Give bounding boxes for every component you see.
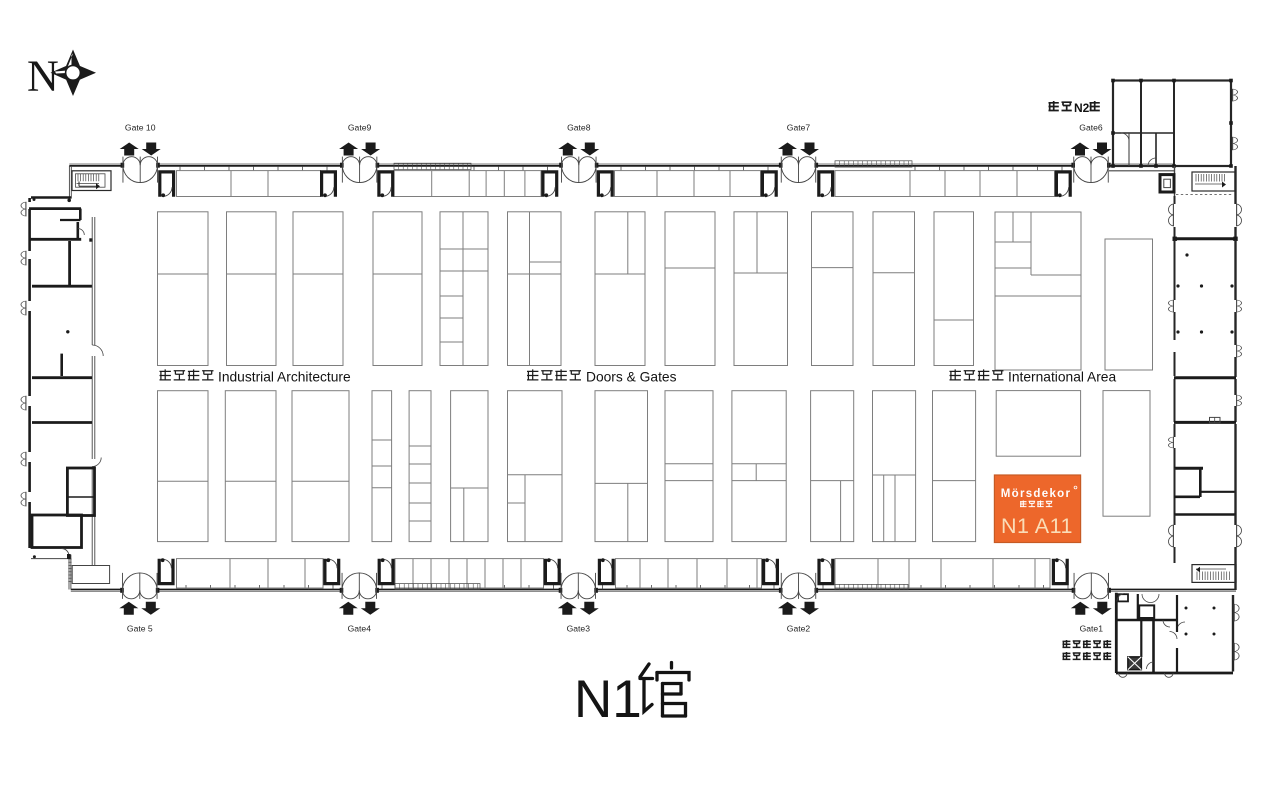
- svg-text:N1 A11: N1 A11: [1001, 514, 1073, 538]
- svg-text:Gate6: Gate6: [1079, 123, 1103, 133]
- svg-text:Mörsdekor: Mörsdekor: [1001, 488, 1072, 500]
- svg-text:Gate1: Gate1: [1080, 624, 1104, 634]
- svg-text:N: N: [27, 52, 59, 101]
- svg-text:Gate7: Gate7: [787, 123, 811, 133]
- svg-text:Gate2: Gate2: [787, 624, 811, 634]
- svg-text:Gate8: Gate8: [567, 123, 591, 133]
- svg-text:Industrial Architecture: Industrial Architecture: [218, 370, 351, 385]
- svg-text:Gate3: Gate3: [567, 624, 591, 634]
- svg-text:Gate 10: Gate 10: [125, 123, 156, 133]
- svg-text:N1: N1: [574, 670, 642, 729]
- svg-text:Doors & Gates: Doors & Gates: [586, 370, 677, 385]
- svg-text:International Area: International Area: [1008, 370, 1116, 385]
- svg-text:N2: N2: [1074, 101, 1090, 115]
- svg-text:Gate4: Gate4: [348, 624, 372, 634]
- svg-text:Gate 5: Gate 5: [127, 624, 153, 634]
- svg-text:Gate9: Gate9: [348, 123, 372, 133]
